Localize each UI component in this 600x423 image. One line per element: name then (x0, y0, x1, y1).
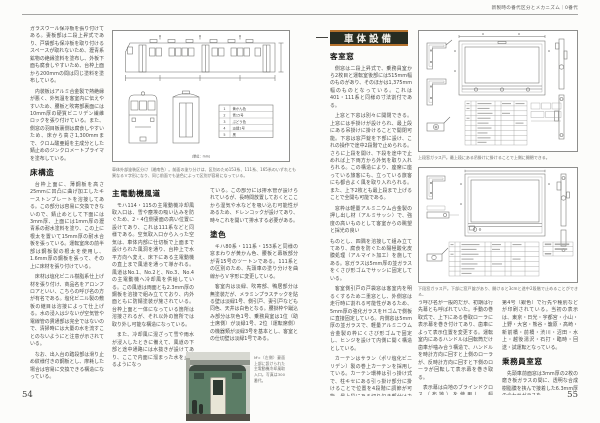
body-paragraph: キハ80系・111系・153系と同様の窓まわりが黄かん色、腰板と幕板部分が青15… (210, 244, 298, 281)
left-column-3: ている。この部分には排水管が設けられているが、長時間放置しておくとここから湿気や… (210, 188, 298, 348)
photo-air-intake-left (194, 373, 204, 379)
body-paragraph: ている。この部分には排水管が設けられているが、長時間放置しておくとここから湿気や… (210, 188, 298, 225)
train-paint-diagram: 1 2 3 4 5 黄かん色 青15号 ぶどう色 淡緑1号 黒 （単位：mm） (112, 30, 290, 162)
head-rule (22, 14, 578, 15)
upper-window-diagram (418, 30, 578, 152)
intro-paragraph: 内装板はアルミ合金製で熱絶縁が悪く、外気温を客室内に伝えやすいため、腰板と吹寄部… (30, 89, 104, 164)
sash-elevation (461, 170, 550, 236)
right-column-3: 第4号（銀色）で行先や種別などが印刷されている。当初の表示は、東京・日光・宇都宮… (502, 300, 578, 395)
body-paragraph: 台枠上面に、薄鋼板を高さ25mmに凹凸に曲げ加工したキーストンプレートを溶接して… (30, 182, 104, 271)
body-paragraph: ものとし、四隅を溶接して組み立ててあり、腐食を防ぐため陽極酸化皮膜処理（アルマイ… (330, 239, 412, 284)
photo-jumper-hose (199, 404, 203, 414)
body-paragraph: 第4号（銀色）で行先や種別などが印刷されている。当初の表示は、東京・日光・宇都宮… (502, 300, 578, 352)
page-number-right: 55 (560, 390, 578, 400)
photo-jumper-hose (192, 400, 197, 414)
car-end-photo (186, 352, 250, 421)
body-paragraph: モハ114・115の主電動機冷却風取入口は、雪や塵埃の吸い込みを防ぐため、2・4… (112, 203, 194, 330)
lower-diagram-caption: 下段窓ガラス戸。下部に窓戸錠があり、開けると3cmと途中2段階で止めることができ… (418, 286, 578, 296)
legend-label: 淡緑1号 (233, 125, 246, 130)
photo-door-window (213, 380, 223, 395)
body-paragraph: また、冷却風に混ざって雪や雨水が浸入したときに備えて、風道の下部と途中通路には水… (112, 332, 194, 369)
lower-window-diagram-art (419, 168, 577, 282)
right-column-2: う呼び名が一般的だが、初期は行先幕とも呼ばれていた。手動の巻取式で、上下にある巻… (418, 300, 493, 395)
body-paragraph: 窓枠は軽量アルミニウム合金製の押し出し材（アルミサッシ）で、強度の高いものとして… (330, 206, 412, 236)
legend-no: 5 (223, 133, 225, 137)
photo-ground (186, 414, 250, 421)
body-paragraph: う呼び名が一般的だが、初期は行先幕とも呼ばれていた。手動の巻取式で、上下にある巻… (418, 300, 493, 382)
sash-elevation (455, 34, 550, 96)
legend-no: 3 (223, 120, 225, 124)
upper-window-diagram-art (419, 31, 577, 151)
legend-label: ぶどう色 (233, 119, 247, 124)
color-legend-table: 1 2 3 4 5 黄かん色 青15号 ぶどう色 淡緑1号 黒 (219, 105, 273, 138)
frame-profile-details (427, 176, 459, 261)
sash-side-sections (555, 39, 568, 139)
body-paragraph: 側窓は二段上昇式で、乗務員室から2枚目と運転室後部には515mm幅のものがあり、… (330, 66, 412, 111)
photo-caption: M'c（左側）妻面上部に設けられた主電動機冷却風取入口。写真は300番代。 (254, 355, 285, 397)
label-boxes (543, 242, 573, 256)
lower-window-diagram (418, 167, 578, 283)
section-heading-duct: 主電動機風道 (112, 188, 194, 200)
section-heading-floor: 床構造 (30, 167, 104, 179)
legend-no: 1 (223, 107, 225, 111)
sash-side-sections (557, 174, 570, 252)
legend-label: 黄かん色 (233, 106, 247, 111)
book-spread: 新製時の番代区分とメカニズム｜0番代 ガラスウール保冷板を張り付けてある。妻板部… (0, 0, 600, 423)
frame-profile-details (427, 40, 452, 131)
left-column-2: 主電動機風道 モハ114・115の主電動機冷却風取入口は、雪や塵埃の吸い込みを防… (112, 188, 194, 398)
parts-table-text-bars (467, 103, 525, 143)
running-head: 新製時の番代区分とメカニズム｜0番代 (400, 5, 578, 11)
body-paragraph: 表示幕は白地のブラインドクロス（布地）を使用し、幅660mm、長さ12mで、 (418, 385, 493, 395)
body-paragraph: なお、出入台の踏段部は滑り止め紋様付きの鋼板とし、摩耗した場合は容易に交換できる… (30, 352, 104, 382)
end-section-view (173, 91, 199, 143)
section-heading-paint: 塗色 (210, 229, 298, 241)
label-boxes (531, 103, 561, 121)
intro-paragraph: ガラスウール保冷板を張り付けてある。妻板部は二段上昇式であり、戸袋部も保冷板を取… (30, 26, 104, 86)
photo-car-roof (189, 365, 246, 371)
body-paragraph: 床材は塩化ビニル樹脂系仕上げ材を張り付け、商品名をアロンフロアといい、こちらの呼… (30, 274, 104, 349)
body-paragraph: 上窓と下窓は別々に開閉できる。上窓には手掛けが設けられ、最上段にある吊掛けに掛け… (330, 113, 412, 202)
diagram-caption: 車体外部塗装区分け（湘南色）。前面の塗り分けは、区別のため153系、111系、1… (112, 167, 296, 183)
legend-label: 黒 (233, 133, 237, 137)
body-paragraph: カーテンはサラン（ポリ塩化ビニリデン）製の巻上カーテンを採用している。カーテン環… (330, 356, 412, 396)
front-end-view (129, 92, 157, 143)
section-heading-cabin-window: 客室窓 (330, 51, 412, 63)
photo-air-intake-right (232, 373, 242, 379)
section-title-box: 車体設備 (330, 30, 408, 46)
body-paragraph: 客室内は淡緑、吹寄部、鴨居部分は無塗装だが、メラミンプラスチックを貼る壁は淡緑1… (210, 284, 298, 344)
legend-no: 2 (223, 113, 225, 117)
legend-label: 青15号 (233, 112, 245, 117)
page-number-left: 54 (22, 390, 33, 400)
upper-diagram-caption: 上段窓ガラス戸。最上段にある吊掛けに掛けることで上側に開閉できる。 (418, 155, 578, 165)
train-paint-diagram-art: 1 2 3 4 5 黄かん色 青15号 ぶどう色 淡緑1号 黒 （単位：mm） (113, 31, 289, 161)
left-column-1: ガラスウール保冷板を張り付けてある。妻板部は二段上昇式であり、戸袋部も保冷板を取… (30, 26, 104, 398)
legend-no: 4 (223, 126, 225, 130)
right-column-1: 客室窓 側窓は二段上昇式で、乗務員室から2枚目と運転室後部には515mm幅のもの… (330, 51, 412, 396)
section-box-dash (316, 37, 328, 38)
section-heading-crew-window: 乗務員室窓 (502, 356, 578, 368)
diagram-note: （単位：mm） (190, 154, 212, 159)
side-elevation (126, 35, 284, 81)
body-paragraph: 客室側引戸の戸袋窓は客室内を明るくするため二重窓とし、外側窓は走行時に割れる可能… (330, 286, 412, 353)
